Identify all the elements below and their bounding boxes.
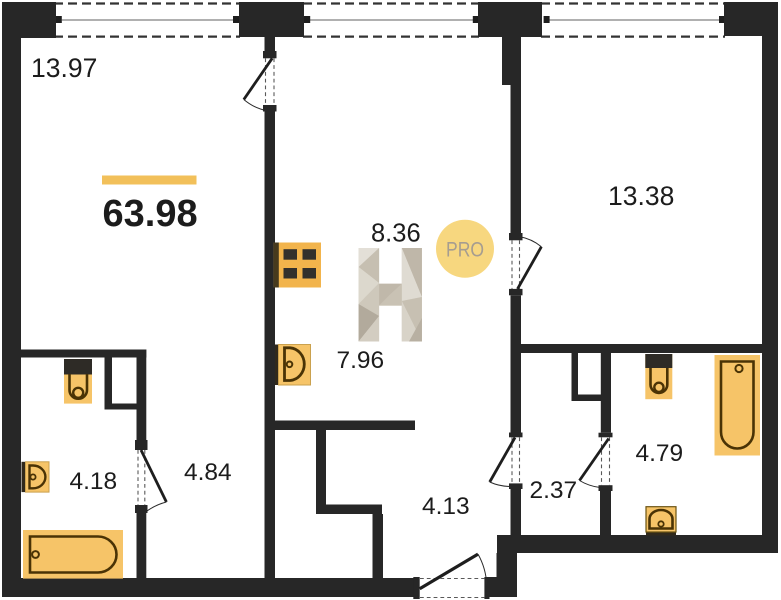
- svg-text:4.84: 4.84: [184, 459, 232, 486]
- svg-text:13.38: 13.38: [608, 181, 674, 211]
- svg-text:13.97: 13.97: [31, 53, 97, 83]
- svg-text:7.96: 7.96: [337, 347, 385, 374]
- svg-text:63.98: 63.98: [103, 193, 198, 235]
- svg-text:4.18: 4.18: [70, 468, 118, 495]
- svg-text:PRO: PRO: [446, 237, 484, 261]
- svg-text:4.13: 4.13: [422, 493, 470, 520]
- svg-text:8.36: 8.36: [371, 220, 421, 248]
- svg-text:4.79: 4.79: [636, 440, 684, 467]
- svg-text:2.37: 2.37: [530, 477, 578, 504]
